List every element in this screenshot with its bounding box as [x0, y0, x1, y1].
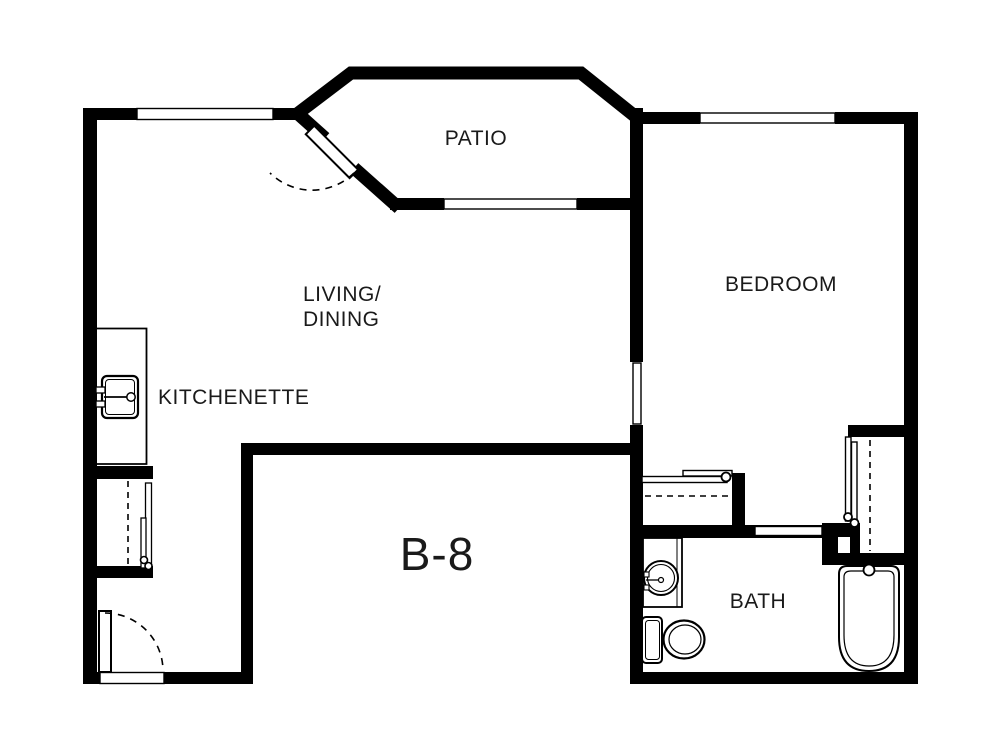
bath-pocket-door — [755, 527, 822, 536]
door-handle-icon — [722, 473, 731, 482]
wall-entry-bottom-seg1 — [83, 672, 100, 684]
wall-top-left-seg — [83, 108, 137, 120]
faucet-handle-icon — [96, 401, 105, 407]
wall-bath-left — [630, 538, 643, 684]
wall-bath-bottom — [630, 672, 918, 684]
room-label-living-line2: DINING — [303, 308, 380, 331]
sliding-door-panel — [852, 442, 858, 523]
sliding-door-panel — [642, 477, 727, 483]
closets — [128, 437, 870, 570]
room-label-living-line1: LIVING/ — [303, 283, 381, 306]
patio-door-swing-arc — [270, 173, 354, 190]
wall-hall-right — [241, 443, 253, 684]
wall-patio-bottom-right-seg — [577, 198, 643, 210]
vanity-faucet-handle — [644, 585, 649, 590]
closet-right-sliding-doors — [844, 437, 859, 527]
door-handle-icon — [145, 563, 152, 570]
kitchenette-fixtures — [96, 329, 147, 465]
floor-plan: PATIO LIVING/ DINING KITCHENETTE BEDROOM… — [0, 0, 999, 750]
room-label-bath: BATH — [730, 590, 786, 613]
toilet-tank-inner — [646, 621, 660, 660]
faucet-handle-icon — [96, 387, 105, 393]
bathtub-faucet-icon — [864, 565, 875, 576]
bedroom-pocket-door — [633, 363, 641, 424]
room-label-patio: PATIO — [445, 127, 507, 150]
wall-bedroom-top-left-seg — [630, 112, 700, 124]
wall-entry-bottom-seg2 — [164, 672, 253, 684]
vanity-drain — [659, 578, 664, 583]
unit-label: B-8 — [400, 528, 475, 580]
bathtub-inner — [844, 571, 894, 666]
entry-door-leaf — [99, 611, 111, 672]
wall-patio-outline — [297, 73, 636, 117]
wall-left — [83, 108, 97, 684]
kitchen-closet-doors — [141, 483, 153, 570]
patio-door-leaf — [306, 126, 358, 178]
toilet-bowl-inner — [669, 625, 701, 654]
sliding-door-panel — [846, 437, 852, 521]
floor-plan-page: PATIO LIVING/ DINING KITCHENETTE BEDROOM… — [0, 0, 999, 750]
vanity-faucet-handle — [644, 572, 649, 577]
wall-partition-mid — [630, 425, 643, 525]
door-handle-icon — [851, 519, 859, 527]
wall-living-bottom — [241, 443, 643, 455]
room-label-bedroom: BEDROOM — [725, 273, 837, 296]
wall-kitchen-stub-upper — [83, 466, 153, 479]
wall-patio-lower-diagonal — [354, 168, 399, 208]
patio-window — [444, 199, 577, 209]
faucet-spout-end — [127, 393, 135, 401]
wall-closet-right-bottom — [830, 553, 918, 565]
living-room-window — [137, 109, 273, 120]
wall-partition-upper — [630, 108, 643, 362]
room-label-kitchenette: KITCHENETTE — [158, 386, 309, 409]
entry-door-swing-arc — [105, 613, 163, 671]
closet-left-sliding-doors — [642, 471, 732, 483]
wall-bedroom-bottom-right — [848, 425, 918, 437]
bedroom-window — [700, 113, 835, 123]
wall-right — [904, 112, 918, 684]
entry-door-threshold — [100, 673, 164, 684]
